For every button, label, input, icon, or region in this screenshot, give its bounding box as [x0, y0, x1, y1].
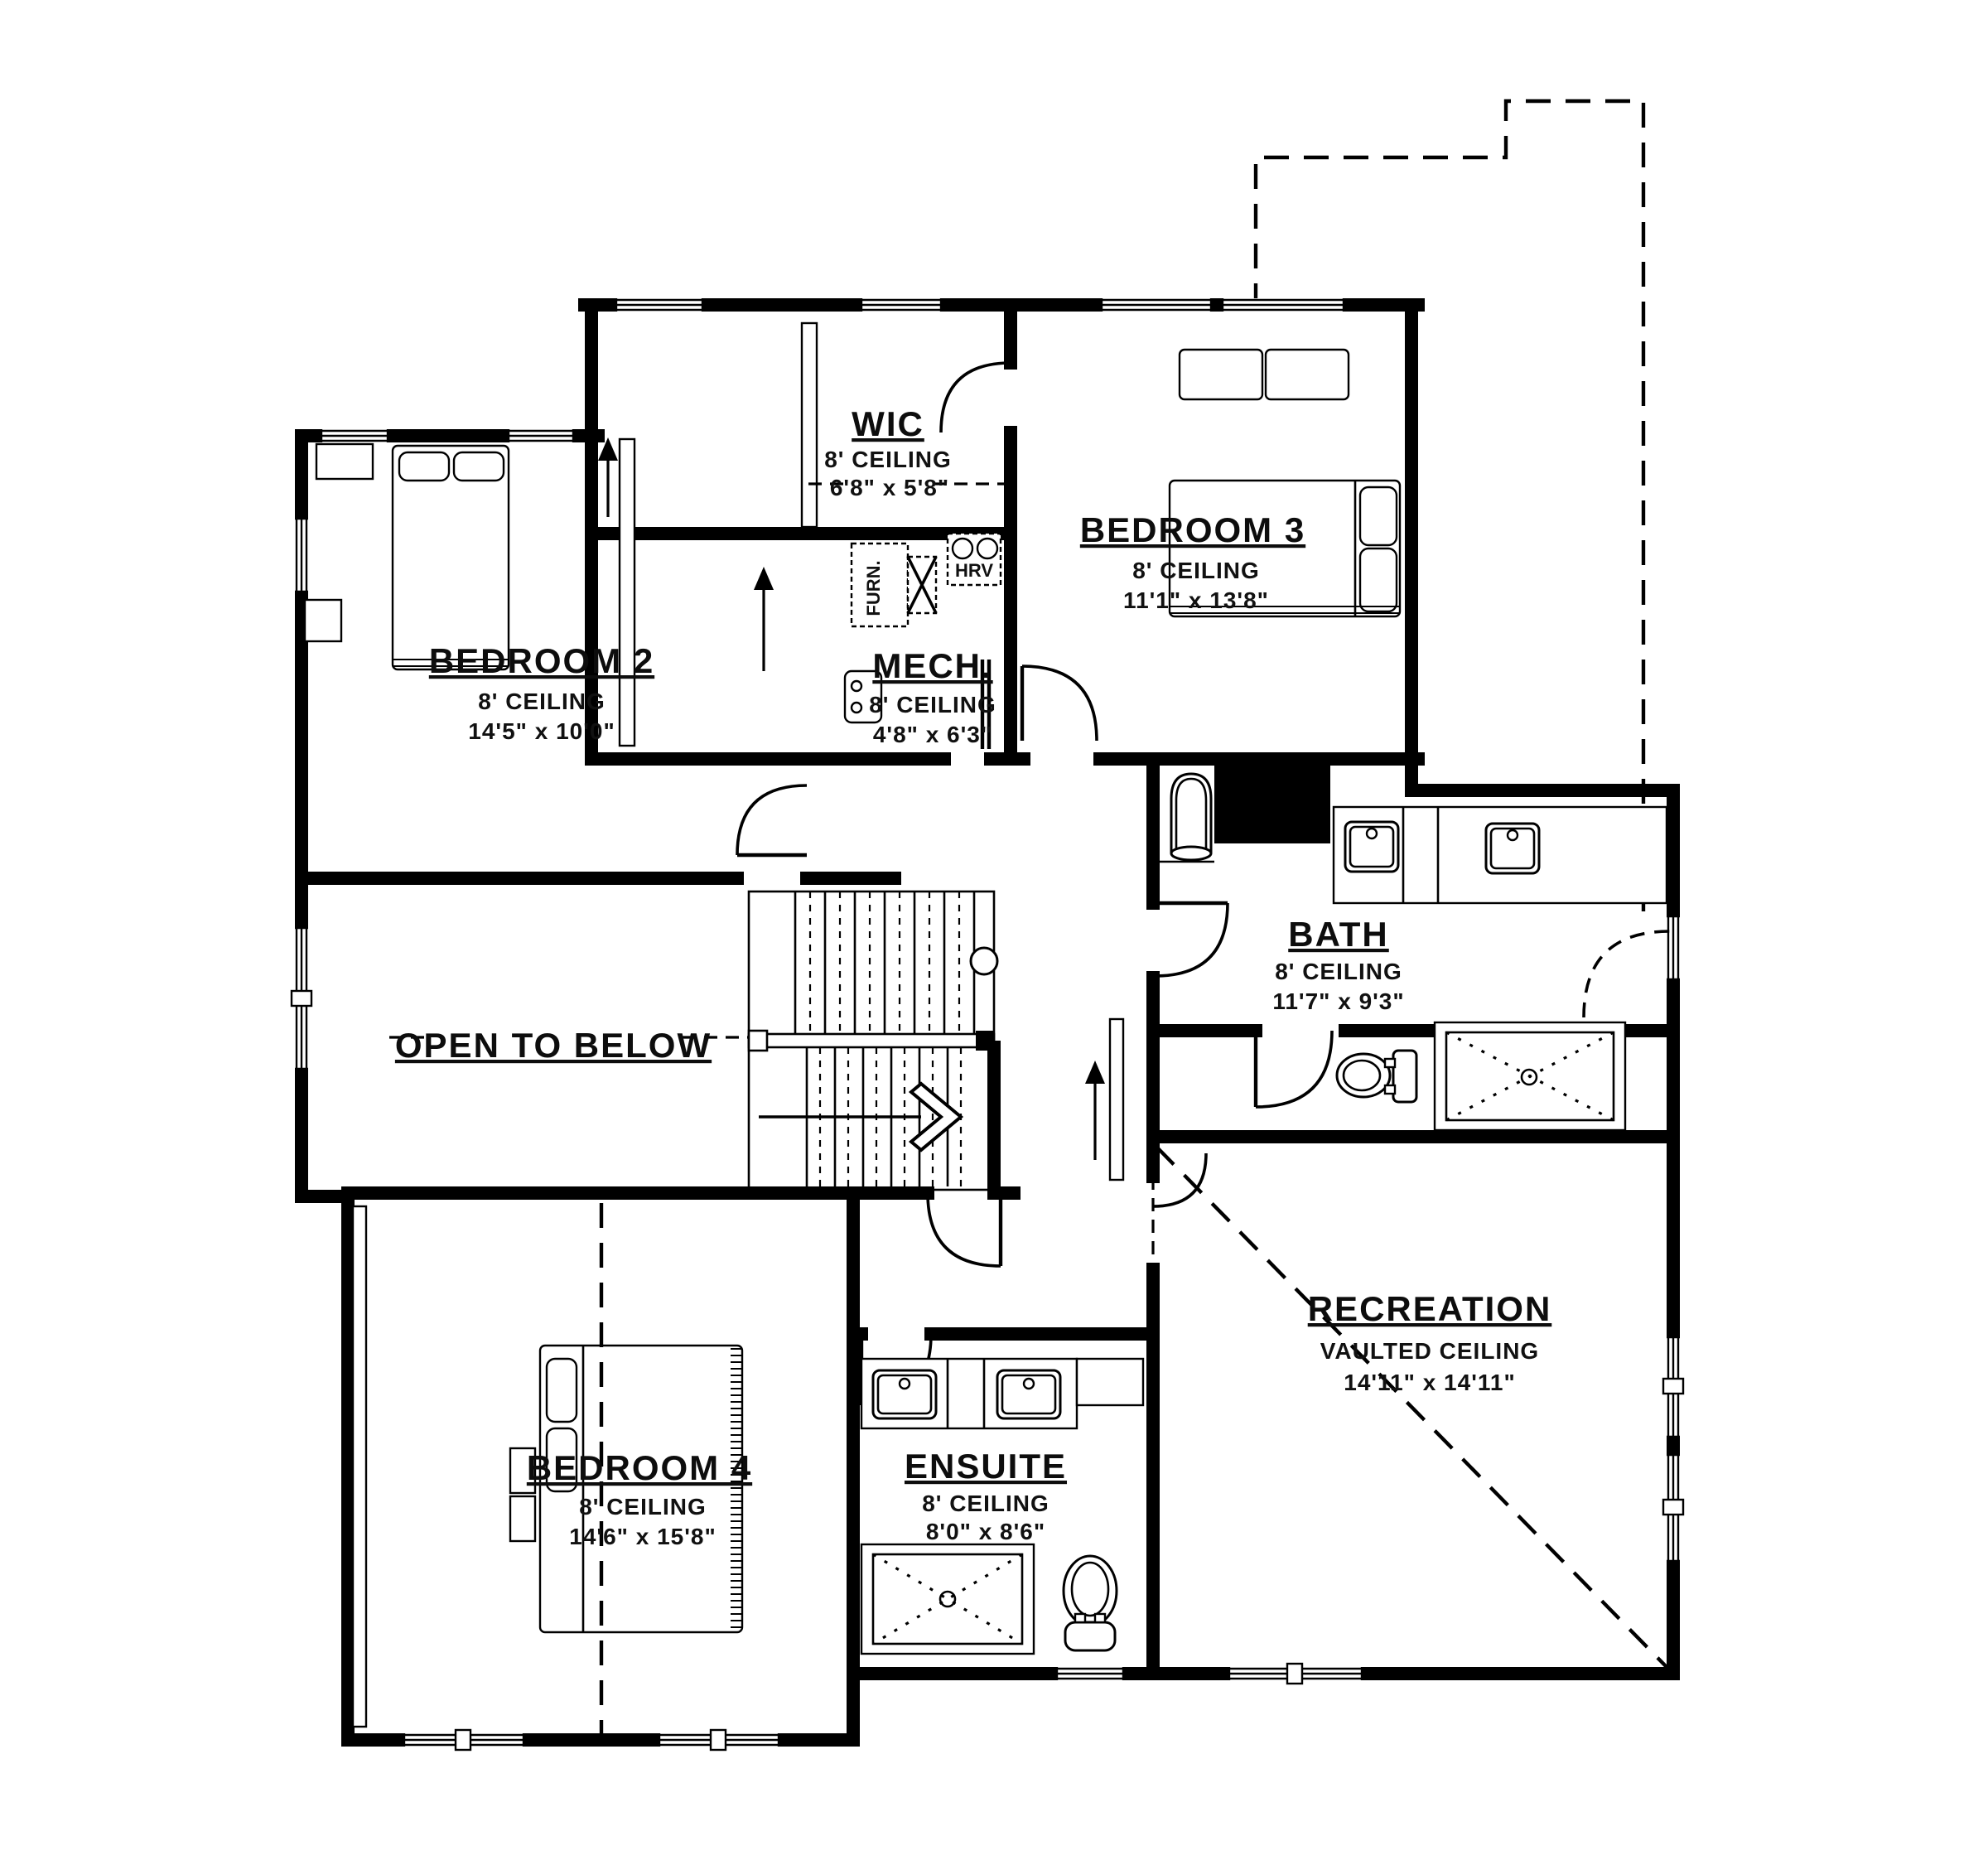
- chase-bedroom4-left: [353, 1206, 366, 1727]
- bedroom4-nightstand: [510, 1496, 535, 1541]
- toilet-side-icon: [1337, 1051, 1416, 1102]
- room-ceiling-bedroom4: 8' CEILING: [579, 1494, 707, 1520]
- room-ceiling-mech: 8' CEILING: [869, 692, 996, 718]
- bedroom2-bed: [393, 446, 509, 669]
- toilet-top-icon: [1171, 774, 1211, 860]
- room-ceiling-recreation: VAULTED CEILING: [1320, 1338, 1539, 1364]
- floor-plan-drawing: HRV FURN.: [0, 0, 1988, 1869]
- newel-circle: [971, 948, 997, 974]
- furnace-label: FURN.: [863, 560, 884, 616]
- window-top-bedroom3-b: [1223, 298, 1344, 312]
- room-dims-recreation: 14'11" x 14'11": [1344, 1370, 1516, 1395]
- room-label-ensuite: ENSUITE: [905, 1447, 1067, 1486]
- room-label-bedroom2: BEDROOM 2: [429, 641, 654, 680]
- room-ceiling-bedroom2: 8' CEILING: [478, 689, 606, 714]
- room-dims-bedroom2: 14'5" x 10'0": [468, 718, 615, 744]
- bath-vanity: [1334, 807, 1667, 903]
- toilet-front-icon: [1064, 1556, 1117, 1650]
- room-label-bedroom3: BEDROOM 3: [1080, 510, 1305, 549]
- hrv-unit: HRV: [948, 534, 1001, 585]
- furnace-duct: [908, 557, 936, 613]
- bedroom2-dresser: [316, 444, 373, 479]
- window-top-bedroom3-a: [1102, 298, 1211, 312]
- window-bedroom2-top-b: [509, 429, 573, 442]
- newel-post-left: [749, 1031, 767, 1051]
- chase-hall: [1110, 1019, 1123, 1180]
- bedroom2-closet-box: [305, 600, 341, 641]
- window-top-wic: [861, 298, 941, 312]
- sink-icon: [873, 1370, 936, 1418]
- sink-icon: [1345, 822, 1398, 872]
- room-label-bedroom4: BEDROOM 4: [527, 1448, 752, 1487]
- room-dims-ensuite: 8'0" x 8'6": [926, 1519, 1045, 1544]
- room-ceiling-bedroom3: 8' CEILING: [1132, 558, 1260, 583]
- room-dims-bedroom3: 11'1" x 13'8": [1123, 587, 1269, 613]
- bath-shower: [1435, 1022, 1625, 1130]
- room-dims-wic: 6'8" x 5'8": [830, 475, 949, 500]
- room-label-wic: WIC: [852, 404, 924, 443]
- sink-icon: [1486, 824, 1539, 873]
- sink-icon: [997, 1370, 1060, 1418]
- chase-landing-left: [620, 439, 635, 746]
- room-dims-mech: 4'8" x 6'3": [873, 722, 992, 747]
- window-ensuite-bottom: [1057, 1667, 1123, 1680]
- newel-post-right: [976, 1031, 994, 1051]
- chase-wic-left: [802, 323, 817, 527]
- chase-block: [1214, 762, 1330, 843]
- room-ceiling-bath: 8' CEILING: [1275, 959, 1402, 984]
- room-label-open-to-below: OPEN TO BELOW: [395, 1026, 712, 1065]
- room-dims-bath: 11'7" x 9'3": [1272, 988, 1404, 1014]
- room-dims-bedroom4: 14'6" x 15'8": [569, 1524, 716, 1549]
- window-bath-right: [1667, 916, 1680, 979]
- room-label-mech: MECH.: [872, 646, 992, 685]
- room-ceiling-ensuite: 8' CEILING: [922, 1491, 1049, 1516]
- window-top-landing: [616, 298, 702, 312]
- ensuite-shower: [861, 1544, 1034, 1654]
- floor-plan-page: HRV FURN.: [0, 0, 1988, 1869]
- bedroom3-dresser: [1180, 350, 1262, 399]
- hrv-label: HRV: [955, 560, 993, 581]
- bedroom4-bed: [540, 1346, 742, 1632]
- window-bedroom2-top-a: [321, 429, 388, 442]
- room-ceiling-wic: 8' CEILING: [824, 447, 952, 472]
- window-bedroom2-left: [295, 519, 308, 592]
- bed-foot-hatch: [731, 1346, 742, 1632]
- bedroom3-dresser: [1266, 350, 1349, 399]
- room-label-recreation: RECREATION: [1308, 1289, 1552, 1328]
- room-label-bath: BATH: [1288, 915, 1389, 954]
